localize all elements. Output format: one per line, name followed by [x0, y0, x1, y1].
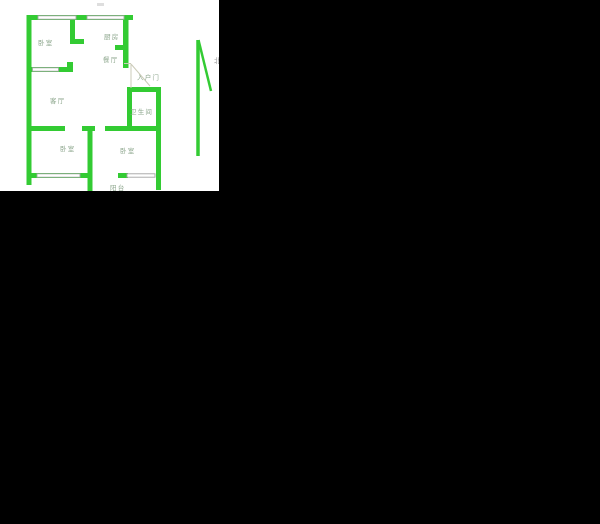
wall-segment	[27, 126, 66, 131]
room-label-bedroom-bottom-right: 卧室	[120, 146, 135, 155]
wall-segment	[70, 39, 84, 44]
room-label-living-room: 客厅	[50, 96, 65, 105]
north-label: 北	[214, 57, 219, 65]
wall-segment	[105, 126, 156, 131]
room-label-bedroom-bottom-left: 卧室	[60, 144, 75, 153]
window-symbol	[87, 16, 124, 19]
room-label-dining-room: 餐厅	[103, 55, 118, 64]
window-symbol	[33, 68, 59, 71]
wall-segment	[27, 15, 32, 185]
wall-segment	[67, 62, 73, 72]
window-symbol	[127, 174, 155, 177]
screen-background: 卧室 厨房 餐厅 入户门 客厅 卫生间 卧室 卧室 阳台 北	[0, 0, 600, 524]
room-label-bedroom-top-left: 卧室	[38, 38, 53, 47]
wall-segment	[127, 87, 161, 92]
room-label-kitchen: 厨房	[104, 32, 119, 41]
wall-segment	[88, 126, 93, 191]
room-label-balcony: 阳台	[110, 183, 125, 191]
room-label-entrance-door: 入户门	[137, 73, 160, 82]
wall-segment	[115, 45, 123, 50]
wall-segment	[118, 173, 128, 178]
wall-segment	[123, 15, 129, 68]
north-arrow-icon	[198, 40, 211, 156]
wall-segment	[156, 87, 161, 190]
floorplan-image: 卧室 厨房 餐厅 入户门 客厅 卫生间 卧室 卧室 阳台 北	[0, 0, 219, 191]
floorplan-drawing: 卧室 厨房 餐厅 入户门 客厅 卫生间 卧室 卧室 阳台 北	[0, 0, 219, 191]
room-label-bathroom: 卫生间	[130, 107, 153, 116]
window-symbol	[38, 16, 76, 19]
north-arrow-diagonal	[199, 40, 212, 91]
watermark-mark	[97, 3, 104, 6]
window-symbol	[37, 174, 80, 177]
